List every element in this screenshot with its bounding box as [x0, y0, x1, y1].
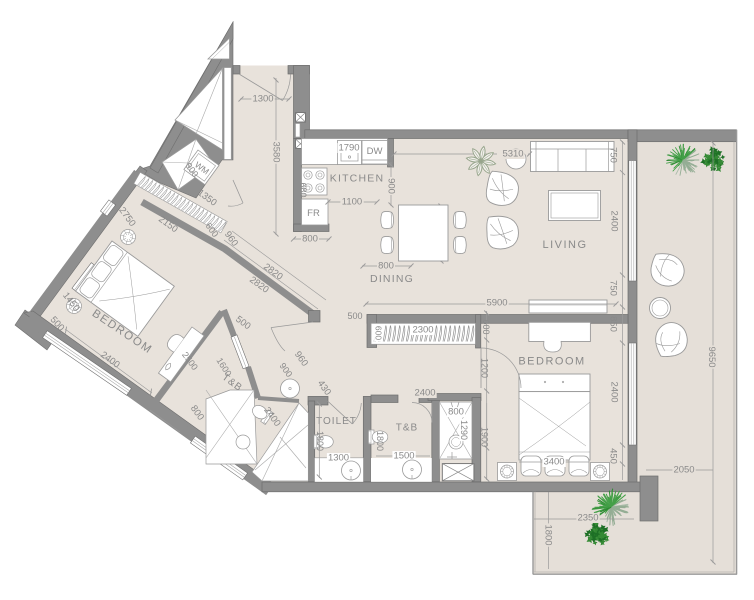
svg-text:2400: 2400 [414, 388, 435, 399]
svg-text:450: 450 [608, 448, 619, 464]
svg-text:9650: 9650 [706, 346, 717, 367]
svg-text:750: 750 [608, 147, 619, 163]
svg-text:2400: 2400 [609, 381, 620, 402]
svg-text:750: 750 [608, 280, 619, 296]
svg-text:1290: 1290 [459, 420, 469, 440]
svg-text:2300: 2300 [412, 325, 433, 336]
svg-text:5310: 5310 [502, 149, 523, 160]
svg-text:1800: 1800 [375, 431, 385, 451]
svg-text:FR: FR [307, 208, 320, 219]
svg-text:900: 900 [386, 178, 397, 194]
svg-text:800: 800 [378, 261, 394, 272]
svg-text:2350: 2350 [577, 513, 598, 524]
svg-text:3580: 3580 [271, 141, 282, 162]
svg-text:1800: 1800 [315, 431, 325, 451]
svg-text:1300: 1300 [328, 453, 349, 464]
svg-text:1100: 1100 [342, 197, 362, 208]
svg-text:5900: 5900 [486, 298, 507, 309]
svg-text:DW: DW [367, 146, 383, 157]
svg-text:TOILET: TOILET [316, 416, 357, 427]
svg-text:LIVING: LIVING [542, 239, 587, 251]
svg-text:1790: 1790 [338, 143, 359, 154]
svg-text:800: 800 [448, 407, 464, 418]
svg-text:600: 600 [374, 326, 384, 340]
svg-text:600: 600 [481, 319, 491, 334]
svg-text:1900: 1900 [480, 427, 490, 447]
svg-text:850: 850 [608, 316, 619, 332]
svg-text:680: 680 [298, 182, 308, 197]
svg-text:2400: 2400 [609, 210, 620, 231]
svg-text:1300: 1300 [252, 94, 273, 105]
svg-text:800: 800 [302, 234, 318, 245]
svg-text:2050: 2050 [673, 465, 694, 476]
svg-text:DINING: DINING [370, 273, 414, 285]
svg-text:500: 500 [347, 311, 362, 321]
svg-text:KITCHEN: KITCHEN [330, 173, 385, 185]
svg-text:T&B: T&B [396, 423, 418, 434]
svg-text:BEDROOM: BEDROOM [518, 356, 585, 368]
svg-text:1800: 1800 [543, 524, 554, 545]
svg-text:3400: 3400 [543, 457, 564, 468]
